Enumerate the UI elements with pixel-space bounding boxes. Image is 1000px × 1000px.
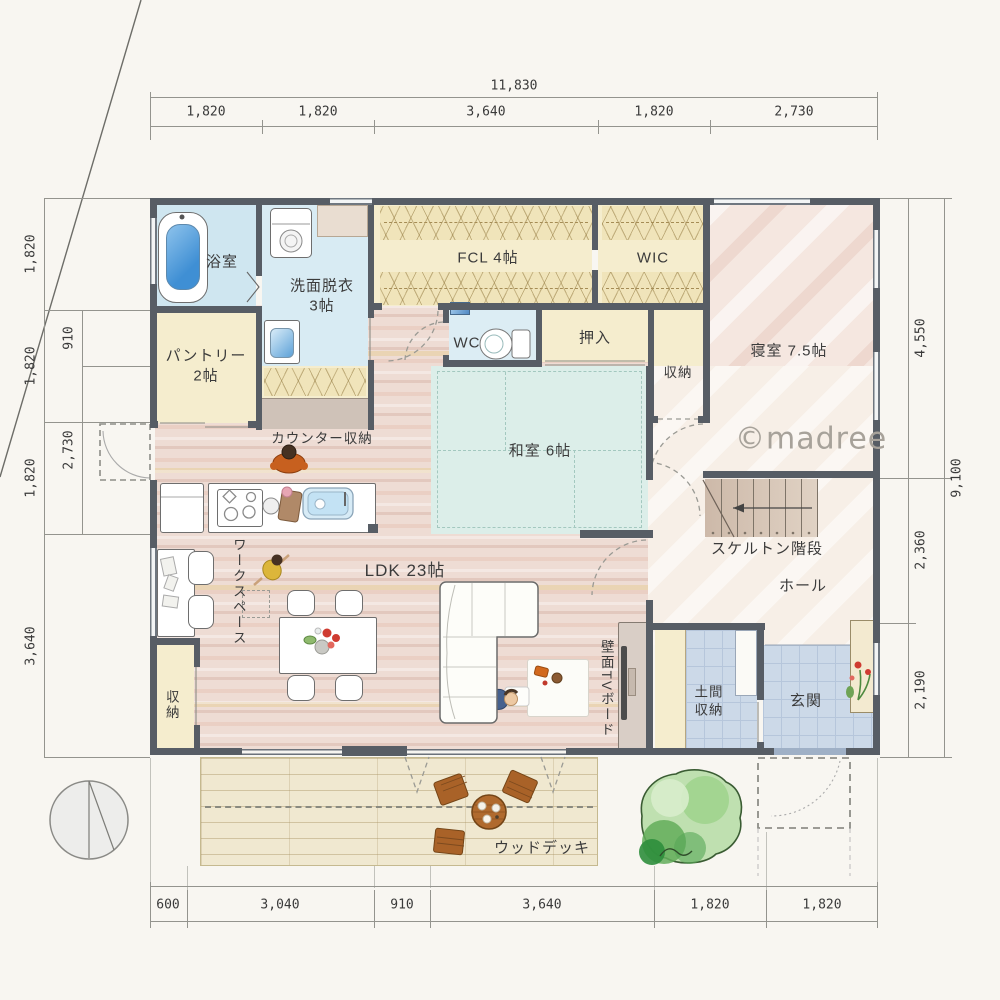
tub-faucet-icon [180, 215, 185, 220]
dim-tick [374, 120, 375, 134]
desk-papers-icon [160, 557, 178, 608]
dim-tick [150, 882, 151, 928]
dim-ext [44, 198, 150, 199]
dim-tick [430, 890, 431, 928]
dim-line [150, 97, 878, 98]
label-genkan: 玄関 [790, 691, 822, 711]
dim-line [150, 126, 878, 127]
dim-ext [44, 757, 150, 758]
dim-top-total: 11,830 [491, 79, 538, 94]
label-oshiire: 押入 [579, 328, 611, 348]
label-washroom: 洗面脱衣 3帖 [290, 277, 354, 316]
dim-tick [187, 890, 188, 928]
rug-toys-icon [534, 666, 562, 686]
dim-bottom-seg: 3,640 [522, 898, 561, 913]
dim-ext [44, 534, 150, 535]
dim-tick [654, 890, 655, 928]
dim-right-inner: 2,190 [914, 670, 929, 709]
dim-ext [880, 623, 916, 624]
dim-line [150, 921, 878, 922]
entrance-flowers-icon [846, 662, 871, 701]
cutting-board-icon [278, 487, 302, 522]
dim-ext [880, 757, 952, 758]
label-pantry: パントリー 2帖 [166, 347, 247, 386]
north-symbol [50, 781, 128, 859]
dim-left-outer: 1,820 [24, 458, 39, 497]
washer-drum-icon [272, 224, 310, 252]
label-washitsu: 和室 6帖 [509, 441, 572, 461]
dim-bottom-seg: 910 [390, 898, 413, 913]
label-stairs: スケルトン階段 [711, 539, 823, 559]
watermark: ©madree [735, 422, 887, 457]
label-storage-north: 収納 [664, 364, 693, 382]
dim-tick [150, 92, 151, 140]
label-deck: ウッドデッキ [494, 838, 590, 858]
dim-tick [374, 890, 375, 928]
dim-right-inner: 2,360 [914, 530, 929, 569]
label-bath: 浴室 [206, 252, 238, 272]
dim-ext [880, 478, 952, 479]
label-ldk: LDK 23帖 [365, 560, 446, 582]
dim-bottom-seg: 600 [156, 898, 179, 913]
label-doma: 土間 収納 [695, 683, 724, 718]
label-storage-sw: 収納 [162, 690, 180, 721]
dim-tick [766, 890, 767, 928]
dim-tick [710, 120, 711, 134]
dim-bottom-seg: 3,040 [260, 898, 299, 913]
dim-ext [44, 310, 150, 311]
label-hall: ホール [779, 576, 827, 596]
dim-left-inner: 910 [62, 326, 77, 349]
label-fcl: FCL 4帖 [457, 248, 518, 268]
dim-bottom-seg: 1,820 [690, 898, 729, 913]
dim-top-seg: 1,820 [298, 105, 337, 120]
dim-right-total: 9,100 [950, 458, 965, 497]
dim-right-inner: 4,550 [914, 318, 929, 357]
label-wc: WC [454, 333, 481, 353]
dim-tick [598, 120, 599, 134]
dim-line [150, 886, 878, 887]
dim-left-outer: 3,640 [24, 626, 39, 665]
dim-left-outer: 1,820 [24, 234, 39, 273]
person-cooking [270, 445, 308, 473]
dim-line [44, 198, 45, 758]
dim-top-seg: 3,640 [466, 105, 505, 120]
dim-bottom-seg: 1,820 [802, 898, 841, 913]
dim-top-seg: 2,730 [774, 105, 813, 120]
tree [639, 770, 741, 865]
dim-tick [262, 120, 263, 134]
dim-tick [877, 882, 878, 928]
toilet-icon [480, 329, 530, 359]
deck-table-icon [472, 795, 506, 829]
dim-ext [82, 366, 150, 367]
label-counter-storage: カウンター収納 [271, 430, 373, 448]
dim-ext [44, 422, 150, 423]
table-flowers-icon [304, 628, 340, 654]
dim-left-inner: 2,730 [62, 430, 77, 469]
stove-burners-icon [223, 490, 255, 520]
person-child [254, 555, 289, 586]
label-wic: WIC [637, 248, 669, 268]
dim-ext [880, 198, 952, 199]
label-tv-board: 壁面TVボード [597, 640, 615, 739]
dim-left-outer: 1,820 [24, 346, 39, 385]
label-workspace: ワークスペース [229, 538, 247, 647]
label-bedroom: 寝室 7.5帖 [750, 341, 827, 361]
kitchen-sink-icon [303, 488, 353, 519]
site-boundary-line [0, 0, 141, 477]
dim-top-seg: 1,820 [634, 105, 673, 120]
floor-plan-canvas: 浴室 洗面脱衣 3帖 パントリー 2帖 カウンター収納 FCL 4帖 WIC W… [0, 0, 1000, 1000]
stairs-arrow [703, 480, 812, 537]
dim-top-seg: 1,820 [186, 105, 225, 120]
dim-tick [877, 92, 878, 140]
